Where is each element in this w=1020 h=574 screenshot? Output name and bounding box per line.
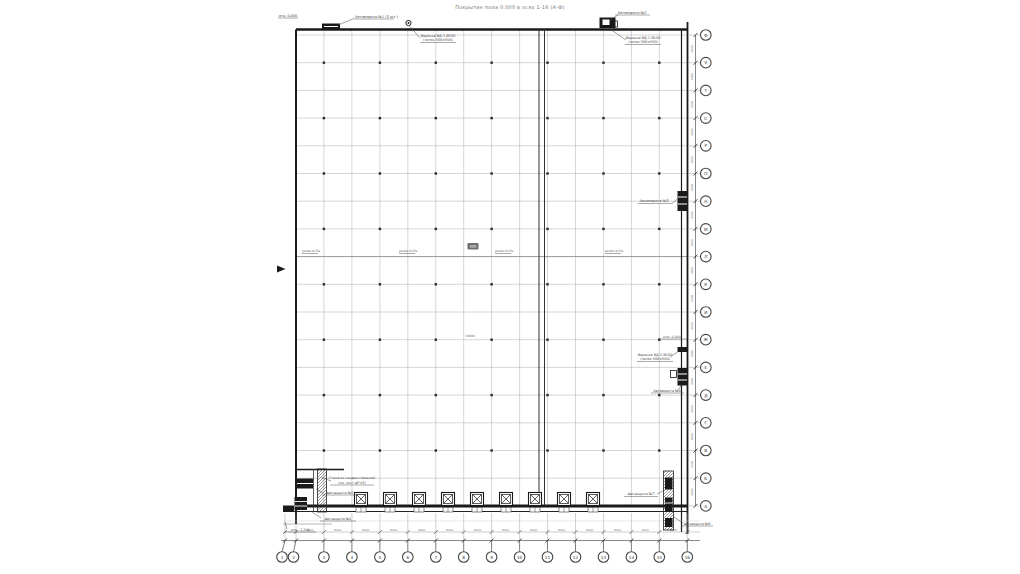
dim-value: 6000 [690, 294, 694, 301]
axis-bubble-label: 1 [281, 555, 284, 560]
column-mark [602, 449, 604, 451]
column-mark [546, 394, 548, 396]
walls [285, 22, 688, 534]
gate-2-notch [603, 20, 610, 26]
axis-bubble-label: 12 [573, 555, 579, 560]
column-mark [435, 394, 437, 396]
top-wall-features [322, 18, 618, 30]
dim-value: 6000 [502, 528, 509, 532]
center-tag [468, 243, 479, 250]
dim-value: 6000 [690, 405, 694, 412]
axis-bubble-label: Ж [704, 337, 709, 342]
annotation-drain1-l2: (лоток 500×500) [423, 38, 454, 42]
annotation-drain1-l1: Воронка ВД-1 Ø100 [421, 34, 456, 38]
axis-bubble-label: Е [704, 365, 707, 370]
slope-label: уклон 0,5% [302, 249, 320, 253]
column-mark [546, 172, 548, 174]
column-mark [323, 283, 325, 285]
axis-bubble-label: В [704, 448, 707, 453]
column-mark [490, 339, 492, 341]
column-mark [546, 339, 548, 341]
dim-value: 6000 [474, 528, 481, 532]
annotation-gate8: Автоворота №8 [684, 522, 711, 526]
annotation-gate2: Автоворота №2 [617, 11, 646, 15]
axis-bubble-label: П [704, 171, 707, 176]
column-mark [490, 228, 492, 230]
dim-value: 6000 [690, 184, 694, 191]
dim-value: 6000 [446, 528, 453, 532]
annotation-leader [312, 512, 321, 518]
gate-4-frame [671, 371, 677, 378]
column-mark [379, 228, 381, 230]
column-mark [658, 62, 660, 64]
axis-bubble-label: 11 [545, 555, 551, 560]
column-mark [658, 117, 660, 119]
dim-value: 6000 [690, 73, 694, 80]
axis-bubble-label: 14 [629, 555, 635, 560]
ramp-block [283, 506, 294, 513]
axis-bubble-label: 8 [462, 555, 465, 560]
dim-value: 6000 [418, 528, 425, 532]
column-mark [546, 62, 548, 64]
column-mark [379, 117, 381, 119]
annotation-wall-note-l2: (см. лист АР-05) [338, 481, 366, 485]
annotation-elev-right: отм. 0,000 [663, 335, 681, 339]
axis-bubble-label: 5 [379, 555, 382, 560]
dim-value: 6000 [690, 45, 694, 52]
dim-value: 6000 [390, 528, 397, 532]
annotation-gate7: Автоворота №7 [628, 492, 655, 496]
column-mark [379, 394, 381, 396]
axis-bubble-label: 7 [434, 555, 437, 560]
axis-bubble-label: 16 [685, 555, 691, 560]
axis-bubble-label: У [705, 60, 708, 65]
axis-bubble-label: Б [704, 476, 707, 481]
construction-grid [296, 30, 688, 507]
column-mark [490, 117, 492, 119]
column-mark [546, 117, 548, 119]
slope-label: уклон 0,5% [495, 249, 513, 253]
column-mark [379, 449, 381, 451]
dim-value: 6000 [690, 211, 694, 218]
column-mark [323, 117, 325, 119]
column-mark [435, 449, 437, 451]
annotation-leader [285, 522, 287, 529]
gate-3 [678, 191, 688, 211]
dim-value: 6000 [690, 350, 694, 357]
slope-label: уклон 0,5% [605, 249, 623, 253]
column-mark [602, 62, 604, 64]
dim-value: 6000 [530, 528, 537, 532]
dim-value: 6000 [690, 488, 694, 495]
column-mark [602, 394, 604, 396]
axis-bubbles-bottom: 12345678910111213141516 [277, 541, 693, 563]
dim-value: 6000 [642, 528, 649, 532]
dim-value: 6000 [690, 100, 694, 107]
column-mark [546, 283, 548, 285]
column-mark [490, 62, 492, 64]
dim-value: 6000 [690, 128, 694, 135]
floor-plan-canvas: 6000600060006000600060006000600060006000… [0, 0, 1020, 574]
slope-labels: уклон 0,5%уклон 0,5%уклон 0,5%уклон 0,5% [302, 249, 623, 254]
axis-bubble-label: А [704, 504, 707, 509]
axis-bubble-label: Г [705, 420, 708, 425]
axis-bubble-label: Н [704, 199, 707, 204]
column-mark [323, 228, 325, 230]
column-mark [435, 283, 437, 285]
axis-bubble-label: Л [704, 254, 707, 259]
dimension-system: 6000600060006000600060006000600060006000… [281, 33, 700, 543]
dim-value: 6000 [586, 528, 593, 532]
column-mark [602, 228, 604, 230]
annotations: отм. 0,000Автоворота №1 (3 шт.)Воронка В… [278, 11, 713, 533]
axis-bubble-label: 6 [406, 555, 409, 560]
axis-bubble-label: 4 [351, 555, 354, 560]
axis-bubble-label: С [704, 116, 707, 121]
drawing-page: Покрытие пола 0.000 в осях 1-16 (А-Ф) 60… [0, 0, 1020, 574]
annotation-leader [338, 19, 354, 26]
column-mark [658, 283, 660, 285]
entrance-block [295, 497, 308, 510]
annotation-gate3: Автоворота №3 [639, 199, 668, 203]
axis-bubble-label: Ф [704, 33, 708, 38]
gate-7-block [665, 478, 673, 490]
column-mark [602, 117, 604, 119]
column-mark [490, 394, 492, 396]
axis-bubble-label: 13 [601, 555, 607, 560]
axis-bubble-label: М [704, 227, 708, 232]
column-mark [658, 172, 660, 174]
column-mark [323, 449, 325, 451]
column-mark [602, 283, 604, 285]
column-mark [490, 172, 492, 174]
annotation-drain3-l1: Воронка ВД-3 Ø100 [638, 353, 673, 357]
annotation-gate4: Автоворота №4 [653, 389, 680, 393]
column-mark [379, 172, 381, 174]
annotation-gate1: Автоворота №1 (3 шт.) [355, 15, 399, 19]
dim-value: 6000 [690, 322, 694, 329]
right-wall-features [671, 191, 688, 386]
annotation-leader [410, 26, 421, 38]
column-mark [546, 228, 548, 230]
dim-value: 6000 [690, 461, 694, 468]
dim-value: 6000 [690, 239, 694, 246]
axis-bubble-label: К [704, 282, 707, 287]
annotation-gate6: Автоворота №6 [325, 517, 352, 521]
axis-bubble-label: Т [704, 88, 708, 93]
column-mark [435, 228, 437, 230]
section-arrow-left [277, 266, 286, 273]
column-mark [658, 228, 660, 230]
column-mark [435, 62, 437, 64]
axis-bubble-label: 15 [657, 555, 663, 560]
annotation-drain2-l1: Воронка ВД-2 Ø100 [626, 36, 661, 40]
annotation-top-left-elev: отм. 0,000 [279, 14, 297, 18]
dock-doors [355, 493, 600, 513]
column-mark [435, 117, 437, 119]
dim-value: 6000 [362, 528, 369, 532]
column-mark [602, 339, 604, 341]
column-mark [379, 62, 381, 64]
annotation-drain3-l2: (лоток 500×500) [640, 357, 671, 361]
column-mark [379, 283, 381, 285]
annotation-wall-note-l1: Стена из сэндвич-панелей [329, 476, 375, 480]
dim-value: 6000 [690, 433, 694, 440]
column-mark [323, 62, 325, 64]
gate-8-block [665, 498, 673, 512]
axis-bubbles-right: ФУТСРПНМЛКИЖЕДГВБА [701, 30, 712, 512]
annotation-drain2-l2: (лоток 500×500) [628, 40, 659, 44]
column-mark [546, 449, 548, 451]
annotation-gate5: Автоворота №5 [327, 491, 354, 495]
column-mark [602, 172, 604, 174]
dim-value-center: 30000 [465, 334, 475, 338]
column-mark [658, 449, 660, 451]
dim-value: 6000 [690, 267, 694, 274]
slope-label: уклон 0,5% [399, 249, 417, 253]
column-mark [658, 394, 660, 396]
axis-bubble-label: 9 [490, 555, 493, 560]
axis-bubble-label: 2 [292, 555, 295, 560]
drain-funnel-1-center [408, 22, 410, 24]
column-mark [323, 172, 325, 174]
corner-block [665, 518, 673, 527]
annotation-elev-bl: отм. -1,200 [290, 528, 309, 532]
tag-box-inner [470, 245, 477, 248]
dim-value: 6000 [334, 528, 341, 532]
column-mark [323, 394, 325, 396]
dim-value: 6000 [614, 528, 621, 532]
column-mark [435, 339, 437, 341]
bottom-right-complex [664, 471, 674, 530]
axis-bubble-label: 3 [323, 555, 326, 560]
dim-value: 6000 [690, 156, 694, 163]
gate-4 [678, 368, 688, 386]
column-mark [490, 449, 492, 451]
column-mark [379, 339, 381, 341]
column-mark [323, 339, 325, 341]
dim-value: 6000 [690, 377, 694, 384]
column-mark [490, 283, 492, 285]
axis-bubble-label: 10 [517, 555, 523, 560]
dim-value: 6000 [558, 528, 565, 532]
axis-bubble-label: И [704, 310, 707, 315]
column-mark [435, 172, 437, 174]
